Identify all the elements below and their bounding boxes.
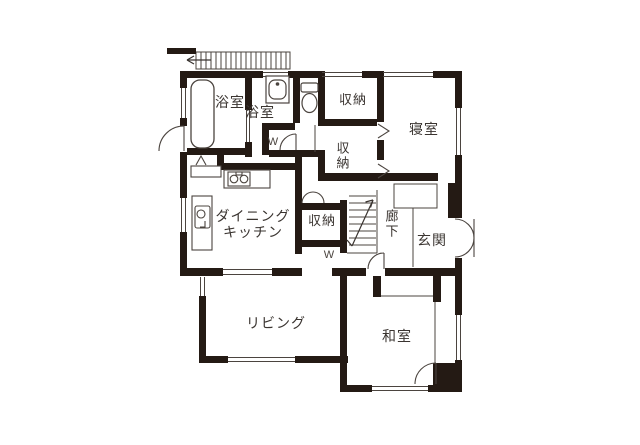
dining-kitchen-line2: キッチン (216, 224, 291, 240)
shoe-cabinet (394, 184, 437, 267)
toilet-icon (301, 83, 318, 113)
room-label-bedroom: 寝室 (409, 121, 439, 137)
room-label-entrance: 玄関 (417, 232, 447, 248)
room-label-japanese-room: 和室 (382, 328, 412, 344)
room-label-storage-closet: 収納 (335, 141, 350, 171)
room-label-washroom: 浴室 (245, 104, 275, 120)
entrance-double-door (455, 219, 474, 257)
exterior-wall-stub (167, 48, 196, 54)
room-label-dining-kitchen: ダイニング キッチン (216, 208, 291, 240)
kitchen-sink-icon (192, 196, 212, 250)
stove-icon (224, 170, 270, 188)
vent-triangle (196, 156, 206, 165)
room-label-storage-hall: 収納 (308, 213, 336, 229)
room-label-corridor: 廊下 (384, 209, 399, 239)
room-label-storage-top: 収納 (339, 92, 367, 108)
bifold-marker: W (268, 136, 279, 148)
washer-pan (191, 156, 221, 177)
storage-double-door-arc (302, 192, 324, 203)
washbasin-icon (266, 76, 289, 103)
stairs (347, 190, 377, 253)
bifold-marker: W (324, 249, 335, 261)
japanese-room-door-arc (415, 363, 436, 384)
room-label-living: リビング (246, 315, 306, 331)
living-door-arc (368, 253, 384, 269)
washroom-door-arc (280, 134, 296, 150)
floor-plan: W W 浴室 浴室 収納 寝室 収納 ダイニング キッチン 収納 廊下 玄関 リ… (0, 0, 640, 445)
room-label-bathroom: 浴室 (215, 94, 245, 110)
dining-kitchen-line1: ダイニング (216, 208, 291, 224)
back-door-arc (159, 126, 184, 151)
stairs-arrow (347, 200, 373, 246)
bathtub-icon (191, 80, 214, 148)
